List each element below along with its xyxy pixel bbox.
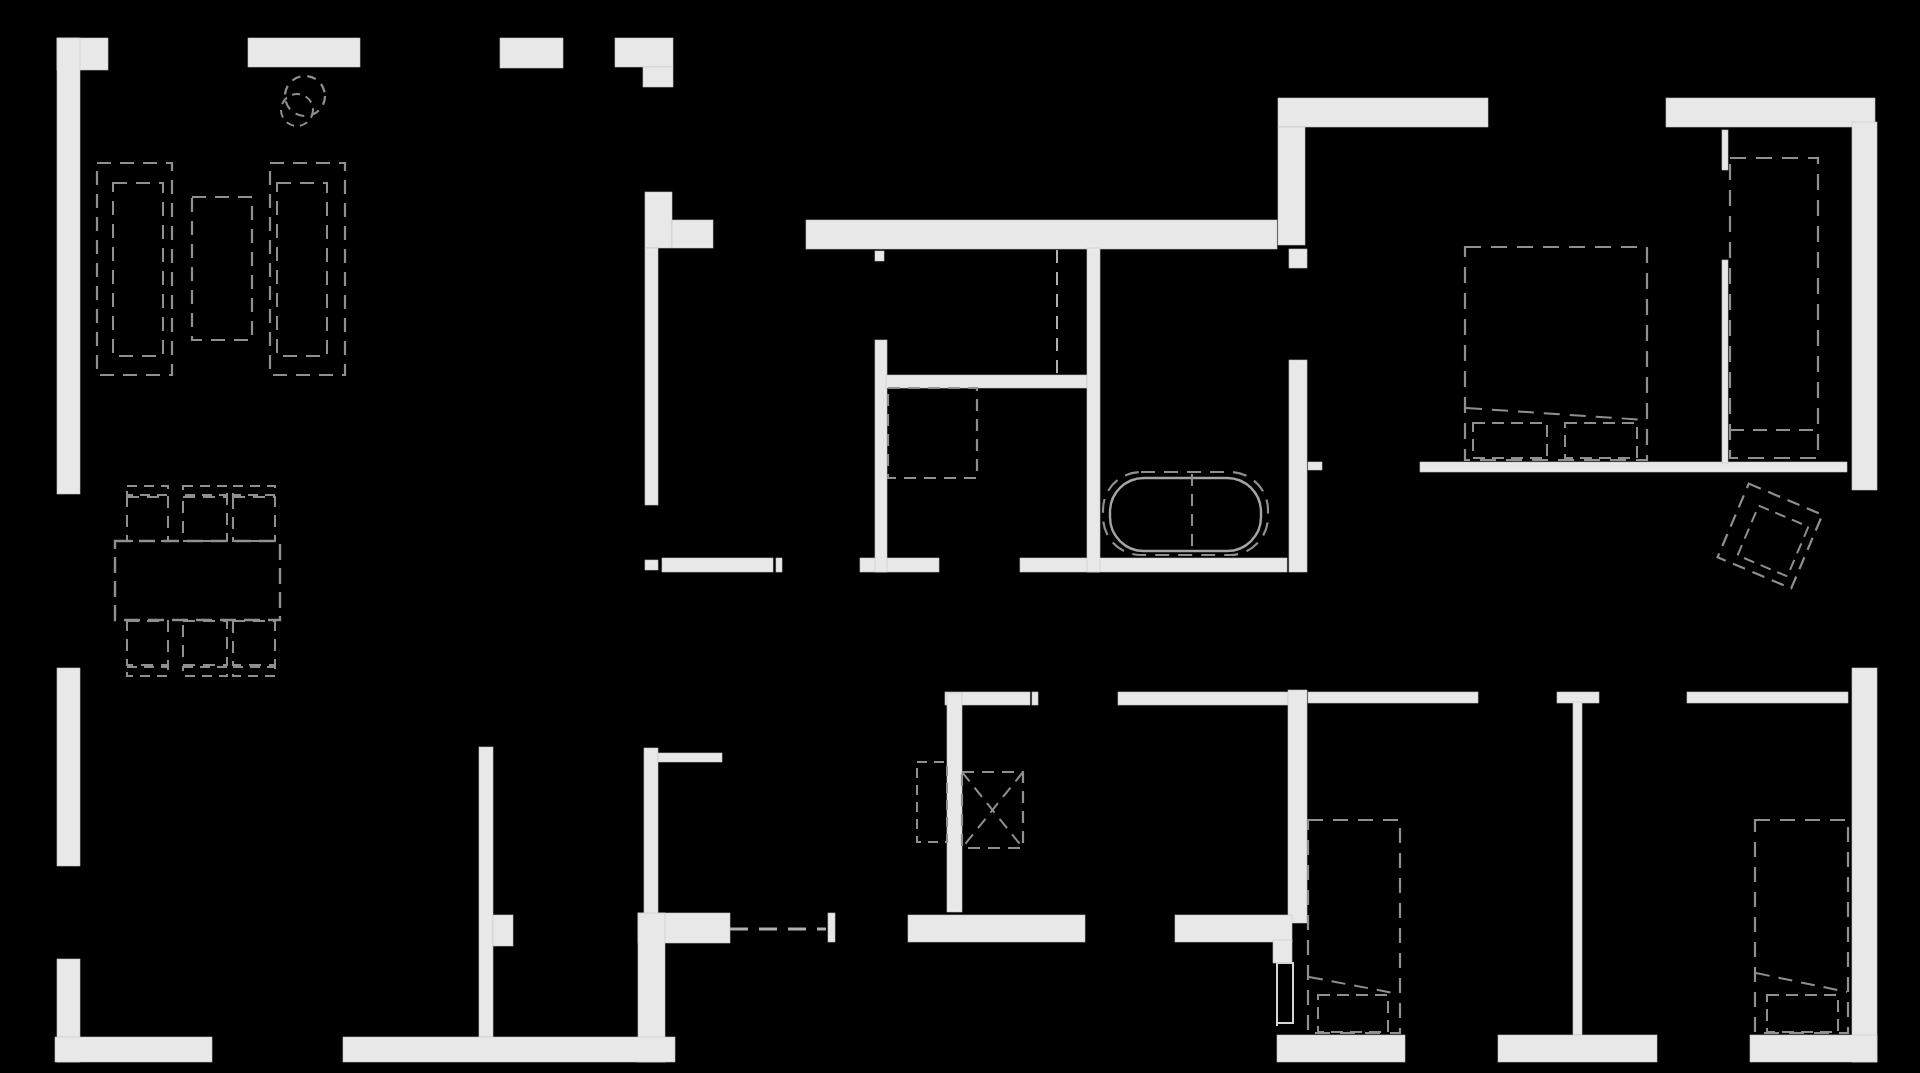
wall-thin-counter [658, 753, 722, 762]
wall-row2-c [1308, 692, 1478, 703]
wall-topright-b [1666, 98, 1875, 127]
wall-corridor-left-upper [645, 248, 658, 505]
wall-mid-bottom-a [662, 558, 773, 572]
wall-top-c [615, 38, 673, 67]
door-tick-mid-a [776, 558, 782, 572]
wall-topright-arm [1278, 127, 1305, 245]
wall-mid-bottom-c [1020, 558, 1287, 572]
wall-bottom-d [1750, 1035, 1877, 1062]
door-tick-row2 [1032, 692, 1038, 705]
wall-row2-b [1118, 692, 1288, 705]
wall-stub-upper [1289, 249, 1307, 268]
door-tick-wc [875, 251, 884, 261]
door-tick-entry [828, 913, 835, 942]
wall-top-c-step [643, 67, 673, 87]
wall-top-a [248, 38, 360, 67]
wall-right-lower [1852, 668, 1877, 1062]
floor-plan-canvas [0, 0, 1920, 1073]
wall-corridor-upper-l [645, 192, 672, 248]
wall-row3-b [1175, 915, 1292, 942]
wall-bath-divider [886, 375, 1087, 388]
wall-mid-bottom-b [860, 558, 939, 572]
wall-bottom-c [1498, 1035, 1657, 1062]
wall-bath2-right [1289, 360, 1307, 572]
wall-center-vert [1288, 690, 1307, 923]
wall-thin-top-a [1722, 130, 1728, 170]
wall-topright-a [1278, 98, 1488, 127]
wall-left-upper [57, 38, 80, 494]
wall-row2-t [1557, 692, 1599, 703]
wall-top-b [500, 38, 563, 68]
wall-thin-top-b [1722, 260, 1728, 463]
wall-bottom-left-corner-arm [55, 1037, 212, 1062]
wall-bottom-a [343, 1037, 675, 1062]
wall-pantry-left [479, 747, 493, 1037]
wall-mid-top [806, 220, 1277, 249]
wall-doorpost [1273, 940, 1292, 963]
wall-corridor-stub [645, 560, 658, 570]
door-tick-bed1 [1308, 462, 1322, 470]
wall-thin-bedrooms [1573, 702, 1582, 1035]
wall-wc-left [875, 340, 887, 572]
wall-bath-right [1087, 248, 1100, 572]
wall-bed1-bottom [1420, 462, 1847, 472]
wall-left-middle [57, 668, 80, 866]
wall-pantry-stub [493, 915, 513, 946]
wall-corridor-upper-arm [672, 220, 713, 248]
wall-laundry-vert [947, 693, 962, 912]
wall-right-upper [1852, 122, 1877, 490]
wall-row3-a [908, 915, 1085, 942]
wall-corridor-left-lower [644, 748, 658, 922]
floor-plan-svg [0, 0, 1920, 1073]
wall-row2-d [1687, 692, 1848, 703]
wall-bottom-b [1277, 1035, 1405, 1062]
